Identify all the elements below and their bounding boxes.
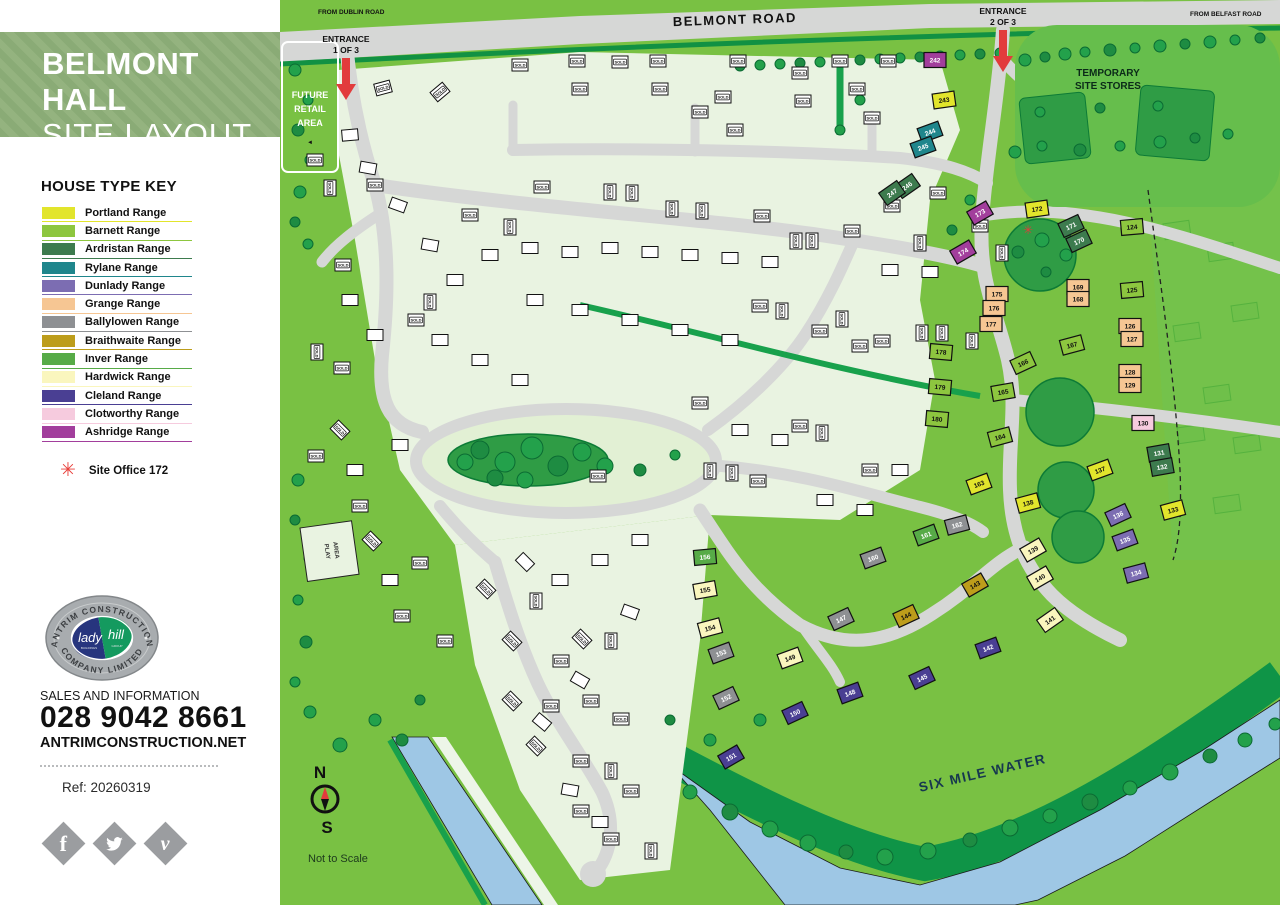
sold-label: SOLD bbox=[732, 59, 743, 64]
sold-house-marker: SOLD bbox=[752, 300, 768, 312]
tree-icon bbox=[495, 452, 515, 472]
site-office-legend: ✳ Site Office 172 bbox=[60, 461, 168, 480]
sold-house-marker: SOLD bbox=[573, 755, 589, 767]
sold-label: SOLD bbox=[652, 59, 663, 64]
key-swatch bbox=[42, 335, 75, 347]
sold-house-marker: SOLD bbox=[534, 181, 550, 193]
key-swatch bbox=[42, 316, 75, 328]
house-marker bbox=[552, 575, 568, 586]
sold-label: SOLD bbox=[314, 346, 319, 357]
key-row-barnett: Barnett Range bbox=[42, 222, 192, 240]
website-url: ANTRIMCONSTRUCTION.NET bbox=[40, 735, 246, 751]
house-marker bbox=[432, 335, 448, 346]
play-area-block: PLAY AREA bbox=[300, 521, 359, 582]
tree-icon bbox=[1123, 781, 1137, 795]
sold-label: SOLD bbox=[514, 63, 525, 68]
sold-label: SOLD bbox=[585, 699, 596, 704]
tree-icon bbox=[1002, 820, 1018, 836]
sold-label: SOLD bbox=[574, 87, 585, 92]
tree-icon bbox=[290, 677, 300, 687]
compass-south-label: S bbox=[321, 818, 332, 837]
sold-label: SOLD bbox=[882, 59, 893, 64]
tree-icon bbox=[963, 833, 977, 847]
antrim-construction-logo: ANTRIM CONSTRUCTION COMPANY LIMITED lady… bbox=[44, 595, 160, 682]
sold-label: SOLD bbox=[427, 296, 432, 307]
sold-label: SOLD bbox=[629, 187, 634, 198]
future-retail-label-3: AREA bbox=[297, 118, 323, 128]
info-sidebar: BELMONT HALL SITE LAYOUT HOUSE TYPE KEY … bbox=[0, 0, 280, 905]
sold-label: SOLD bbox=[614, 60, 625, 65]
sold-house-marker: SOLD bbox=[704, 463, 716, 479]
house-marker bbox=[382, 575, 398, 586]
sold-house-marker: SOLD bbox=[727, 124, 743, 136]
house-marker bbox=[392, 440, 408, 451]
plot-242: 242 bbox=[924, 53, 946, 68]
key-swatch bbox=[42, 262, 75, 274]
sold-label: SOLD bbox=[555, 659, 566, 664]
key-swatch bbox=[42, 426, 75, 438]
facebook-icon: f bbox=[42, 822, 86, 866]
sold-label: SOLD bbox=[369, 183, 380, 188]
from-belfast-road-label: FROM BELFAST ROAD bbox=[1190, 11, 1262, 18]
tree-icon bbox=[521, 437, 543, 459]
tree-icon bbox=[1035, 107, 1045, 117]
not-to-scale-label: Not to Scale bbox=[308, 853, 368, 865]
sold-label: SOLD bbox=[809, 235, 814, 246]
site-map: SOLDSOLDSOLDSOLDSOLDSOLDSOLDSOLDSOLDSOLD… bbox=[280, 0, 1280, 905]
sold-label: SOLD bbox=[969, 335, 974, 346]
tree-icon bbox=[704, 734, 716, 746]
logo-script-hill: hill bbox=[108, 627, 125, 642]
sold-house-marker: SOLD bbox=[792, 420, 808, 432]
sold-house-marker: SOLD bbox=[603, 833, 619, 845]
key-label: Barnett Range bbox=[85, 225, 160, 237]
key-label: Clotworthy Range bbox=[85, 408, 179, 420]
tree-icon bbox=[487, 470, 503, 486]
future-retail-label-2: RETAIL bbox=[294, 104, 326, 114]
sold-label: SOLD bbox=[310, 454, 321, 459]
lawn-green bbox=[1026, 378, 1094, 446]
twitter-icon bbox=[93, 822, 137, 866]
tree-icon bbox=[1130, 43, 1140, 53]
plot-number: 178 bbox=[935, 349, 947, 357]
house-marker bbox=[472, 355, 488, 366]
key-row-rylane: Rylane Range bbox=[42, 259, 192, 277]
sold-house-marker: SOLD bbox=[623, 785, 639, 797]
site-map-canvas: SOLDSOLDSOLDSOLDSOLDSOLDSOLDSOLDSOLDSOLD… bbox=[280, 0, 1280, 905]
sold-label: SOLD bbox=[575, 809, 586, 814]
sold-house-marker: SOLD bbox=[311, 344, 323, 360]
plot-155: 155 bbox=[693, 581, 717, 600]
tree-icon bbox=[1060, 249, 1072, 261]
key-label: Ashridge Range bbox=[85, 426, 169, 438]
tree-icon bbox=[396, 734, 408, 746]
house-marker bbox=[772, 435, 788, 446]
plot-177: 177 bbox=[980, 317, 1002, 332]
logo-script-lady: lady bbox=[78, 630, 103, 645]
sold-label: SOLD bbox=[605, 837, 616, 842]
sold-label: SOLD bbox=[608, 765, 613, 776]
tree-icon bbox=[303, 239, 313, 249]
tree-icon bbox=[1041, 267, 1051, 277]
house-marker bbox=[857, 505, 873, 516]
sold-house-marker: SOLD bbox=[645, 843, 657, 859]
sold-label: SOLD bbox=[866, 116, 877, 121]
house-marker bbox=[722, 335, 738, 346]
tree-icon bbox=[415, 695, 425, 705]
tree-icon bbox=[839, 845, 853, 859]
house-marker bbox=[722, 253, 738, 264]
sold-house-marker: SOLD bbox=[334, 362, 350, 374]
sold-house-marker: SOLD bbox=[916, 325, 928, 341]
sold-label: SOLD bbox=[819, 427, 824, 438]
house-marker bbox=[447, 275, 463, 286]
sold-house-marker: SOLD bbox=[852, 340, 868, 352]
tree-icon bbox=[292, 474, 304, 486]
sold-house-marker: SOLD bbox=[790, 233, 802, 249]
sold-house-marker: SOLD bbox=[874, 335, 890, 347]
future-retail-arrow-icon: ◄ bbox=[307, 140, 313, 146]
cul-de-sac bbox=[580, 861, 606, 887]
sold-label: SOLD bbox=[536, 185, 547, 190]
sold-house-marker: SOLD bbox=[880, 55, 896, 67]
key-row-dunlady: Dunlady Range bbox=[42, 277, 192, 295]
sold-label: SOLD bbox=[917, 237, 922, 248]
sold-label: SOLD bbox=[694, 110, 705, 115]
sold-house-marker: SOLD bbox=[849, 83, 865, 95]
plot-number: 128 bbox=[1125, 369, 1136, 376]
logo-sub-group: GROUP bbox=[111, 644, 122, 648]
tree-icon bbox=[920, 843, 936, 859]
sold-house-marker: SOLD bbox=[936, 325, 948, 341]
plot-129: 129 bbox=[1119, 378, 1141, 393]
plot-number: 156 bbox=[699, 554, 711, 562]
sold-label: SOLD bbox=[814, 329, 825, 334]
tree-icon bbox=[1043, 809, 1057, 823]
page-subtitle: SITE LAYOUT bbox=[42, 117, 280, 153]
plot-number: 177 bbox=[986, 321, 997, 328]
house-marker bbox=[602, 243, 618, 254]
house-marker bbox=[359, 161, 377, 175]
sold-house-marker: SOLD bbox=[715, 91, 731, 103]
sold-house-marker: SOLD bbox=[408, 314, 424, 326]
key-row-clotworthy: Clotworthy Range bbox=[42, 405, 192, 423]
sold-house-marker: SOLD bbox=[812, 325, 828, 337]
lawn-green bbox=[1052, 511, 1104, 563]
key-swatch bbox=[42, 243, 75, 255]
house-marker bbox=[527, 295, 543, 306]
sold-label: SOLD bbox=[648, 845, 653, 856]
sold-label: SOLD bbox=[876, 339, 887, 344]
key-label: Portland Range bbox=[85, 207, 166, 219]
plot-156: 156 bbox=[693, 549, 716, 566]
tree-icon bbox=[955, 50, 965, 60]
tree-icon bbox=[1115, 141, 1125, 151]
tree-icon bbox=[1238, 733, 1252, 747]
tree-icon bbox=[1035, 233, 1049, 247]
sold-house-marker: SOLD bbox=[692, 106, 708, 118]
sold-house-marker: SOLD bbox=[604, 184, 616, 200]
tree-icon bbox=[1153, 101, 1163, 111]
sold-label: SOLD bbox=[615, 717, 626, 722]
house-marker bbox=[562, 247, 578, 258]
tree-icon bbox=[1074, 144, 1086, 156]
entrance2-label: ENTRANCE bbox=[979, 6, 1027, 16]
key-row-inver: Inver Range bbox=[42, 350, 192, 368]
site-stores-label-2: SITE STORES bbox=[1075, 81, 1141, 92]
sold-house-marker: SOLD bbox=[613, 713, 629, 725]
sold-label: SOLD bbox=[337, 263, 348, 268]
plot-175: 175 bbox=[986, 287, 1008, 302]
key-row-braithwaite: Braithwaite Range bbox=[42, 332, 192, 350]
house-marker bbox=[672, 325, 688, 336]
sold-label: SOLD bbox=[864, 468, 875, 473]
sold-label: SOLD bbox=[699, 205, 704, 216]
sold-label: SOLD bbox=[717, 95, 728, 100]
sold-house-marker: SOLD bbox=[996, 245, 1008, 261]
plot-176: 176 bbox=[983, 301, 1005, 316]
house-marker bbox=[762, 257, 778, 268]
tree-icon bbox=[975, 49, 985, 59]
house-type-key-list: Portland RangeBarnett RangeArdristan Ran… bbox=[42, 204, 192, 442]
plot-number: 180 bbox=[931, 416, 943, 424]
tree-icon bbox=[1012, 246, 1024, 258]
key-swatch bbox=[42, 280, 75, 292]
tree-icon bbox=[457, 454, 473, 470]
sold-house-marker: SOLD bbox=[352, 500, 368, 512]
tree-icon bbox=[300, 636, 312, 648]
from-dublin-road-label: FROM DUBLIN ROAD bbox=[318, 9, 385, 16]
tree-icon bbox=[1203, 749, 1217, 763]
sold-house-marker: SOLD bbox=[308, 450, 324, 462]
tree-icon bbox=[754, 714, 766, 726]
sold-house-marker: SOLD bbox=[462, 209, 478, 221]
house-marker bbox=[642, 247, 658, 258]
sold-house-marker: SOLD bbox=[696, 203, 708, 219]
tree-icon bbox=[1190, 133, 1200, 143]
plot-number: 169 bbox=[1073, 284, 1084, 291]
key-swatch bbox=[42, 353, 75, 365]
key-row-ashridge: Ashridge Range bbox=[42, 424, 192, 442]
sold-house-marker: SOLD bbox=[966, 333, 978, 349]
tree-icon bbox=[290, 217, 300, 227]
sold-label: SOLD bbox=[729, 128, 740, 133]
vimeo-icon: v bbox=[144, 822, 188, 866]
sold-house-marker: SOLD bbox=[776, 303, 788, 319]
lawn-green bbox=[1038, 462, 1094, 518]
sold-house-marker: SOLD bbox=[930, 187, 946, 199]
tree-icon bbox=[290, 515, 300, 525]
plot-180: 180 bbox=[925, 411, 948, 428]
house-marker bbox=[367, 330, 383, 341]
sold-house-marker: SOLD bbox=[437, 635, 453, 647]
sold-house-marker: SOLD bbox=[666, 201, 678, 217]
sold-label: SOLD bbox=[592, 474, 603, 479]
sold-house-marker: SOLD bbox=[726, 465, 738, 481]
key-label: Grange Range bbox=[85, 298, 160, 310]
page-title: BELMONT HALL bbox=[42, 46, 280, 117]
sold-house-marker: SOLD bbox=[832, 55, 848, 67]
house-marker bbox=[622, 315, 638, 326]
future-retail-label-1: FUTURE bbox=[292, 90, 329, 100]
sold-house-marker: SOLD bbox=[795, 95, 811, 107]
sold-label: SOLD bbox=[533, 595, 538, 606]
house-marker bbox=[572, 305, 588, 316]
sold-house-marker: SOLD bbox=[512, 59, 528, 71]
sold-house-marker: SOLD bbox=[792, 67, 808, 79]
key-swatch bbox=[42, 298, 75, 310]
sold-label: SOLD bbox=[336, 366, 347, 371]
plot-number: 129 bbox=[1125, 382, 1136, 389]
tree-icon bbox=[1009, 146, 1021, 158]
sold-label: SOLD bbox=[779, 305, 784, 316]
entrance1-sub-label: 1 OF 3 bbox=[333, 45, 359, 55]
house-marker bbox=[592, 817, 608, 828]
sold-label: SOLD bbox=[414, 561, 425, 566]
plot-172: 172 bbox=[1025, 200, 1049, 218]
site-stores-building bbox=[1135, 85, 1215, 161]
sold-label: SOLD bbox=[919, 327, 924, 338]
sold-label: SOLD bbox=[834, 59, 845, 64]
key-swatch bbox=[42, 207, 75, 219]
tree-icon bbox=[1040, 52, 1050, 62]
sold-house-marker: SOLD bbox=[730, 55, 746, 67]
tree-icon bbox=[877, 849, 893, 865]
plot-130: 130 bbox=[1132, 416, 1154, 431]
house-marker bbox=[592, 555, 608, 566]
house-marker bbox=[732, 425, 748, 436]
sold-label: SOLD bbox=[756, 214, 767, 219]
tree-icon bbox=[573, 443, 591, 461]
key-label: Ardristan Range bbox=[85, 243, 171, 255]
sold-label: SOLD bbox=[464, 213, 475, 218]
sold-house-marker: SOLD bbox=[836, 311, 848, 327]
sold-label: SOLD bbox=[575, 759, 586, 764]
tree-icon bbox=[1230, 35, 1240, 45]
tree-icon bbox=[1154, 40, 1166, 52]
plot-165: 165 bbox=[991, 383, 1015, 402]
sold-house-marker: SOLD bbox=[806, 233, 818, 249]
key-label: Rylane Range bbox=[85, 262, 158, 274]
plot-number: 125 bbox=[1126, 287, 1138, 295]
sold-house-marker: SOLD bbox=[530, 593, 542, 609]
key-row-hardwick: Hardwick Range bbox=[42, 369, 192, 387]
sold-house-marker: SOLD bbox=[307, 154, 323, 166]
tree-icon bbox=[548, 456, 568, 476]
sold-label: SOLD bbox=[707, 465, 712, 476]
tree-icon bbox=[1162, 764, 1178, 780]
sold-label: SOLD bbox=[793, 235, 798, 246]
sold-label: SOLD bbox=[754, 304, 765, 309]
tree-icon bbox=[369, 714, 381, 726]
tree-icon bbox=[775, 59, 785, 69]
tree-icon bbox=[289, 64, 301, 76]
sold-label: SOLD bbox=[571, 59, 582, 64]
sold-house-marker: SOLD bbox=[572, 83, 588, 95]
sold-label: SOLD bbox=[752, 479, 763, 484]
tree-icon bbox=[965, 195, 975, 205]
tree-icon bbox=[1037, 141, 1047, 151]
tree-icon bbox=[755, 60, 765, 70]
key-row-cleland: Cleland Range bbox=[42, 387, 192, 405]
key-swatch bbox=[42, 408, 75, 420]
sold-label: SOLD bbox=[794, 424, 805, 429]
sold-label: SOLD bbox=[396, 614, 407, 619]
sold-house-marker: SOLD bbox=[504, 219, 516, 235]
sold-label: SOLD bbox=[327, 182, 332, 193]
sold-label: SOLD bbox=[939, 327, 944, 338]
key-row-grange: Grange Range bbox=[42, 295, 192, 313]
plot-number: 126 bbox=[1125, 323, 1136, 330]
tree-icon bbox=[1082, 794, 1098, 810]
plot-124: 124 bbox=[1120, 219, 1143, 236]
tree-icon bbox=[1080, 47, 1090, 57]
tree-icon bbox=[670, 450, 680, 460]
entrance1-label: ENTRANCE bbox=[322, 34, 370, 44]
key-swatch bbox=[42, 225, 75, 237]
house-marker bbox=[632, 535, 648, 546]
tree-icon bbox=[1180, 39, 1190, 49]
sold-label: SOLD bbox=[669, 203, 674, 214]
plot-number: 175 bbox=[992, 291, 1003, 298]
sold-label: SOLD bbox=[729, 467, 734, 478]
sold-house-marker: SOLD bbox=[864, 112, 880, 124]
sold-label: SOLD bbox=[846, 229, 857, 234]
social-icons: f v bbox=[44, 824, 185, 863]
plot-125: 125 bbox=[1120, 282, 1143, 299]
plot-number: 179 bbox=[934, 384, 946, 392]
tree-icon bbox=[294, 186, 306, 198]
reference-number: Ref: 20260319 bbox=[62, 780, 151, 795]
sold-house-marker: SOLD bbox=[553, 655, 569, 667]
house-marker bbox=[522, 243, 538, 254]
sold-house-marker: SOLD bbox=[605, 763, 617, 779]
plot-243: 243 bbox=[932, 91, 956, 109]
tree-icon bbox=[333, 738, 347, 752]
house-marker bbox=[342, 129, 359, 141]
site-office-map-asterisk-icon: ✳ bbox=[1023, 223, 1033, 237]
tree-icon bbox=[683, 785, 697, 799]
house-marker bbox=[561, 783, 579, 797]
belmont-hall-site-layout-poster: BELMONT HALL SITE LAYOUT HOUSE TYPE KEY … bbox=[0, 0, 1280, 905]
tree-icon bbox=[1104, 44, 1116, 56]
compass-north-label: N bbox=[314, 763, 326, 782]
key-row-portland: Portland Range bbox=[42, 204, 192, 222]
plot-168: 168 bbox=[1067, 292, 1089, 307]
tree-icon bbox=[762, 821, 778, 837]
sold-house-marker: SOLD bbox=[816, 425, 828, 441]
tree-icon bbox=[1204, 36, 1216, 48]
tree-icon bbox=[947, 225, 957, 235]
tree-icon bbox=[1269, 718, 1280, 730]
sold-house-marker: SOLD bbox=[569, 55, 585, 67]
tree-icon bbox=[1019, 54, 1031, 66]
tree-icon bbox=[471, 441, 489, 459]
key-label: Inver Range bbox=[85, 353, 148, 365]
sold-house-marker: SOLD bbox=[324, 180, 336, 196]
sold-house-marker: SOLD bbox=[367, 179, 383, 191]
tree-icon bbox=[665, 715, 675, 725]
house-marker bbox=[922, 267, 938, 278]
title-band: BELMONT HALL SITE LAYOUT bbox=[0, 32, 280, 137]
plot-179: 179 bbox=[928, 379, 951, 396]
key-label: Braithwaite Range bbox=[85, 335, 181, 347]
tree-icon bbox=[1059, 48, 1071, 60]
key-label: Ballylowen Range bbox=[85, 316, 179, 328]
sold-house-marker: SOLD bbox=[844, 225, 860, 237]
sold-house-marker: SOLD bbox=[750, 475, 766, 487]
plot-number: 124 bbox=[1126, 224, 1138, 232]
